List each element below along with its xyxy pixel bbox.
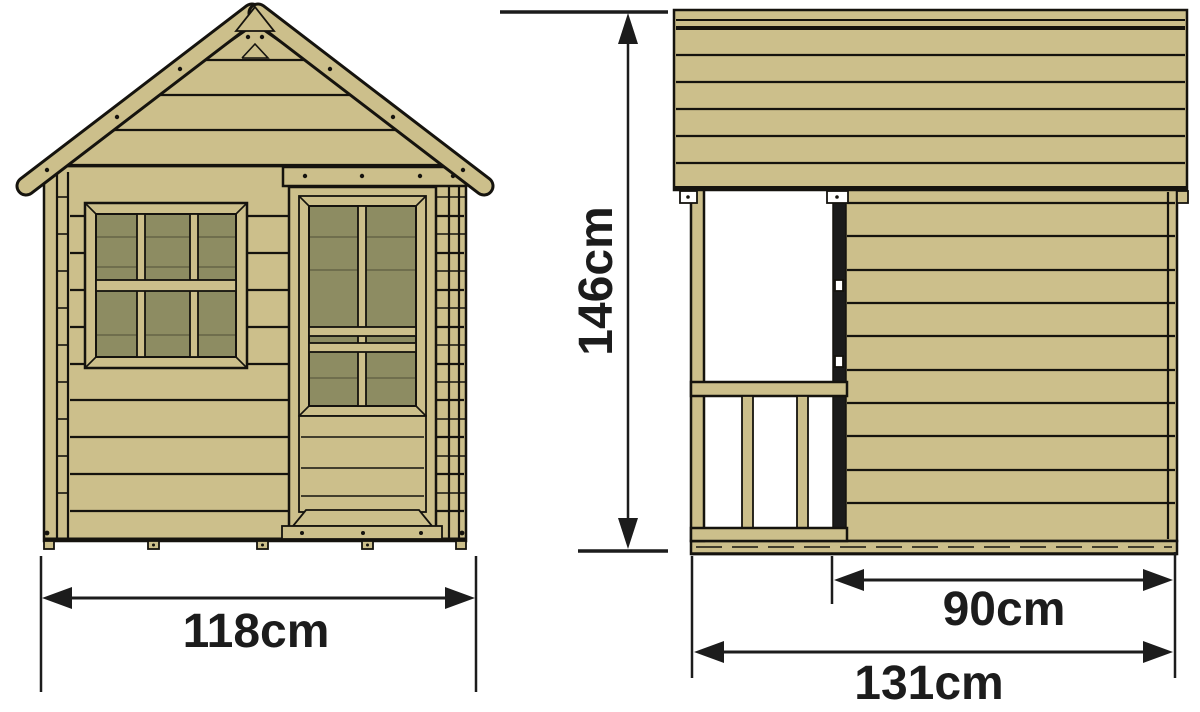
side-roof [674,10,1187,190]
side-total-depth-label: 131cm [854,657,1003,710]
side-base [691,541,1177,554]
arrow-right-icon [1143,569,1173,591]
dimension-front-width: 118cm [41,556,476,692]
front-door-lower-panel [299,416,426,512]
front-roof [26,7,484,186]
playhouse-dimension-diagram: 118cm 146cm 90cm 131cm [0,0,1200,712]
arrow-left-icon [42,587,72,609]
side-wall-depth-label: 90cm [943,583,1066,636]
front-door-header [283,167,466,186]
arrow-up-icon [618,13,638,44]
dimension-height: 146cm [500,12,668,551]
front-door-sill [293,510,432,526]
porch [680,190,848,541]
front-width-label: 118cm [183,605,330,658]
front-window [85,203,247,368]
door-hinge-upper [835,280,843,291]
porch-front-post [691,190,704,541]
side-wall [845,190,1188,541]
side-view [674,10,1188,554]
railing-baluster [797,396,808,530]
side-roof-bracket-right [1177,191,1188,203]
front-view [26,7,484,549]
door-hinge-lower [835,356,843,367]
arrow-down-icon [618,518,638,549]
porch-railing [691,382,847,541]
arrow-left-icon [834,569,864,591]
side-wall-panel [845,190,1177,541]
arrow-right-icon [1143,641,1173,663]
railing-top-rail [691,382,847,396]
playhouse-dimension-diagram-page: 118cm 146cm 90cm 131cm [0,0,1200,712]
railing-bottom-rail [691,528,847,541]
railing-baluster [742,396,753,530]
arrow-left-icon [694,641,724,663]
front-door [282,187,442,539]
arrow-right-icon [445,587,475,609]
height-label: 146cm [570,206,623,355]
